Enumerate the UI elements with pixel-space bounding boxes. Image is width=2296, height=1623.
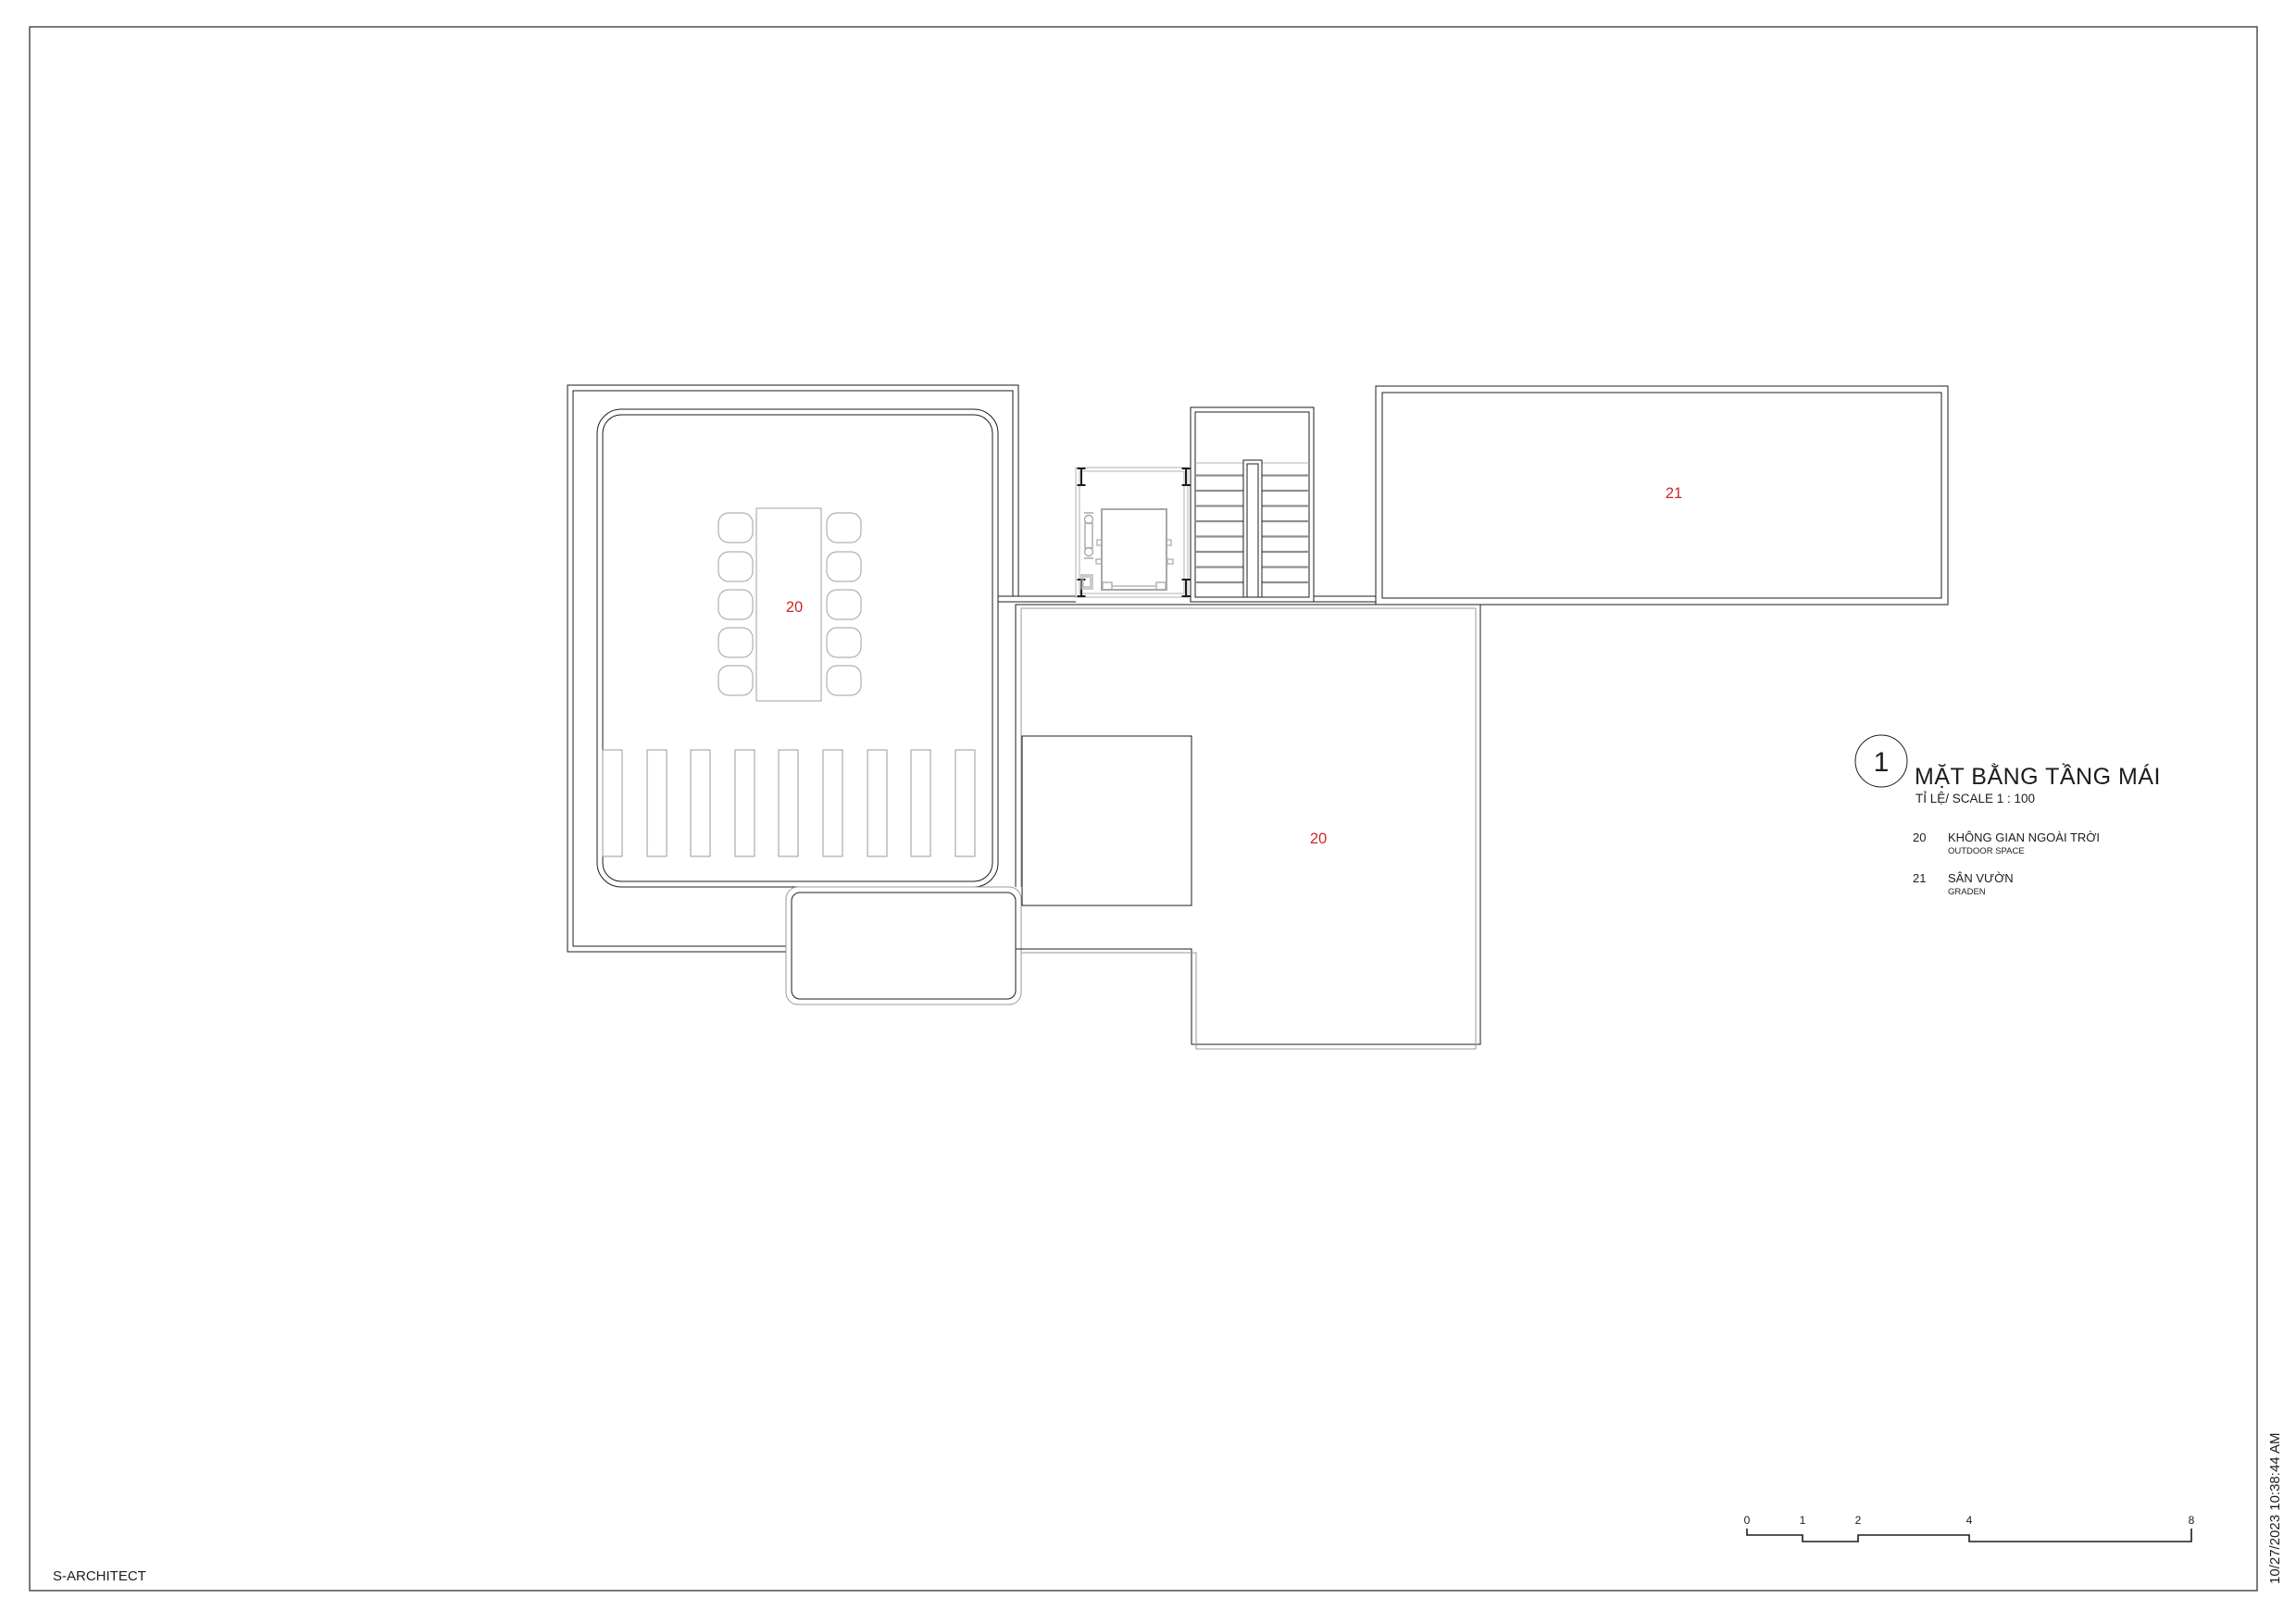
stair-stringer-inner bbox=[1247, 464, 1258, 597]
small-roof-room-outer bbox=[786, 887, 1021, 1005]
chair bbox=[718, 552, 753, 581]
chair bbox=[718, 628, 753, 657]
chair bbox=[718, 590, 753, 619]
pergola-slat bbox=[955, 750, 975, 856]
corridor-right bbox=[1314, 596, 1376, 602]
pergola-slat bbox=[823, 750, 842, 856]
pergola-slat bbox=[735, 750, 755, 856]
floor-plan: 20 20 21 bbox=[568, 385, 1948, 1049]
scale-bar: 0 1 2 4 8 bbox=[1744, 1514, 2195, 1542]
pergola-slat bbox=[691, 750, 710, 856]
chair bbox=[718, 666, 753, 695]
elevator-door-jamb bbox=[1156, 582, 1166, 590]
chair bbox=[827, 513, 861, 543]
terrace-outline-black bbox=[1016, 605, 1480, 1044]
scale-tick-2: 2 bbox=[1855, 1514, 1862, 1527]
legend: 20 KHÔNG GIAN NGOÀI TRỜI OUTDOOR SPACE 2… bbox=[1913, 830, 2100, 897]
stair-wall-outer bbox=[1191, 407, 1314, 602]
legend-code-21: 21 bbox=[1913, 871, 1926, 885]
stair-treads-left bbox=[1195, 476, 1243, 583]
corridor-left bbox=[998, 596, 1076, 602]
company-name: S-ARCHITECT bbox=[53, 1568, 146, 1584]
column-icon bbox=[1078, 468, 1191, 596]
elevator-door-jamb bbox=[1103, 582, 1112, 590]
chairs-right bbox=[827, 513, 861, 695]
legend-name-vi-20: KHÔNG GIAN NGOÀI TRỜI bbox=[1948, 830, 2100, 844]
stair-treads-right bbox=[1262, 476, 1309, 583]
terrace-outline-gray bbox=[1021, 608, 1476, 1049]
garden-outer-wall bbox=[1376, 386, 1948, 605]
pergola-slat bbox=[867, 750, 887, 856]
pergola-slat bbox=[603, 750, 622, 856]
lobby-wall-inner bbox=[1079, 471, 1184, 593]
pergola-slat bbox=[779, 750, 798, 856]
pergola-slats bbox=[603, 750, 975, 856]
scale-tick-4: 4 bbox=[1966, 1514, 1973, 1527]
stair-stringer-outer bbox=[1243, 460, 1262, 597]
legend-code-20: 20 bbox=[1913, 830, 1926, 844]
chair bbox=[827, 552, 861, 581]
plan-title: MẶT BẰNG TẦNG MÁI bbox=[1915, 763, 2161, 790]
elevator-counterweight-icon bbox=[1084, 513, 1093, 558]
legend-name-vi-21: SÂN VƯỜN bbox=[1948, 871, 2014, 885]
detail-number: 1 bbox=[1874, 747, 1890, 778]
room-label-20-left: 20 bbox=[786, 599, 803, 616]
elevator-panel-icon bbox=[1081, 575, 1092, 589]
plot-date-stamp: 10/27/2023 10:38:44 AM bbox=[2267, 1433, 2283, 1584]
left-block-inner-wall bbox=[573, 391, 1013, 946]
pergola-slat bbox=[647, 750, 667, 856]
elevator-car bbox=[1096, 509, 1173, 590]
chair bbox=[718, 513, 753, 543]
room-label-20-terrace: 20 bbox=[1310, 830, 1327, 847]
chair bbox=[827, 666, 861, 695]
floor-plan-svg: 20 20 21 1 MẶT BẰNG TẦNG MÁI TỈ LỆ/ SCAL… bbox=[0, 0, 2296, 1623]
elevator-lobby bbox=[1076, 468, 1191, 597]
scale-tick-0: 0 bbox=[1744, 1514, 1751, 1527]
chair bbox=[827, 590, 861, 619]
room-label-21-garden: 21 bbox=[1666, 485, 1682, 502]
pergola-slat bbox=[911, 750, 930, 856]
stair-wall-inner bbox=[1195, 412, 1309, 597]
legend-name-en-21: GRADEN bbox=[1948, 887, 1986, 897]
scale-tick-8: 8 bbox=[2189, 1514, 2195, 1527]
garden-inner-wall bbox=[1382, 393, 1941, 598]
drawing-sheet: 20 20 21 1 MẶT BẰNG TẦNG MÁI TỈ LỆ/ SCAL… bbox=[0, 0, 2296, 1623]
scale-bar-line bbox=[1747, 1529, 2191, 1542]
left-block-outer-wall bbox=[568, 385, 1018, 952]
skylight-square bbox=[1022, 736, 1192, 905]
chair bbox=[827, 628, 861, 657]
stair-block bbox=[1191, 407, 1314, 602]
legend-name-en-20: OUTDOOR SPACE bbox=[1948, 846, 2025, 856]
scale-tick-1: 1 bbox=[1800, 1514, 1806, 1527]
sheet-border bbox=[30, 27, 2257, 1591]
small-roof-room-inner bbox=[792, 893, 1016, 999]
title-block: 1 MẶT BẰNG TẦNG MÁI TỈ LỆ/ SCALE 1 : 100… bbox=[1855, 735, 2161, 897]
chairs-left bbox=[718, 513, 753, 695]
plan-scale-label: TỈ LỆ/ SCALE 1 : 100 bbox=[1915, 792, 2035, 805]
